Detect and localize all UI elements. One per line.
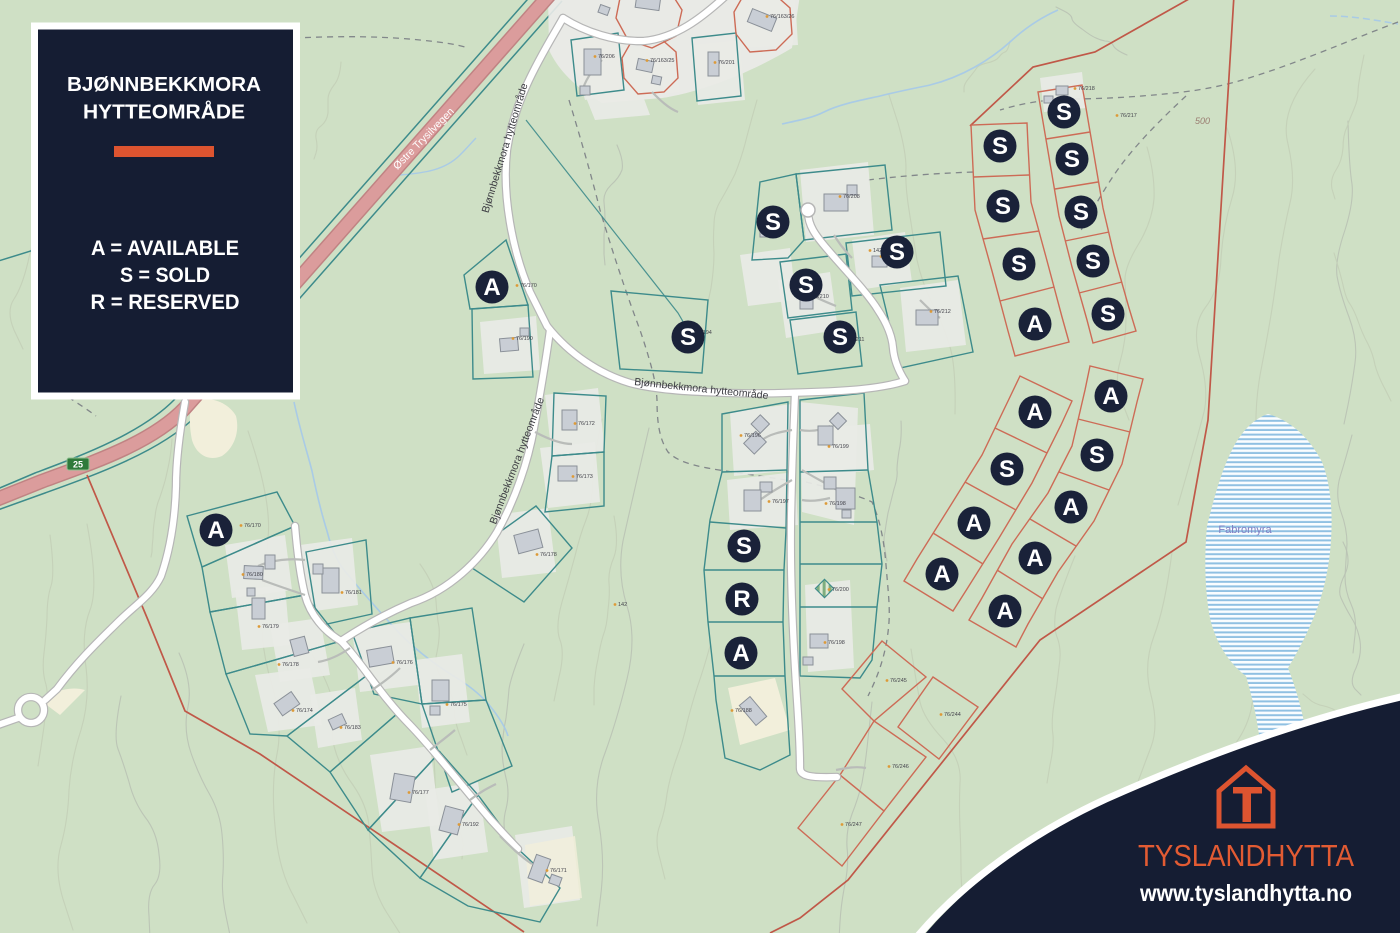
svg-text:76/244: 76/244 [944, 712, 961, 718]
svg-text:A: A [1062, 494, 1079, 521]
svg-text:76/208: 76/208 [843, 194, 860, 200]
svg-text:A: A [1102, 383, 1119, 410]
svg-text:R: R [733, 586, 750, 613]
svg-text:76/170: 76/170 [244, 523, 261, 529]
svg-text:76/198: 76/198 [829, 501, 846, 507]
svg-text:A: A [1026, 399, 1043, 426]
svg-text:76/201: 76/201 [718, 60, 735, 66]
svg-text:S: S [765, 209, 781, 236]
svg-text:76/176: 76/176 [396, 660, 413, 666]
svg-text:S: S [1089, 442, 1105, 469]
svg-text:S: S [1056, 99, 1072, 126]
svg-text:76/173: 76/173 [576, 474, 593, 480]
svg-text:76/178: 76/178 [540, 552, 557, 558]
svg-text:76/172: 76/172 [578, 421, 595, 427]
svg-text:76/196: 76/196 [744, 433, 761, 439]
svg-text:S: S [832, 324, 848, 351]
svg-text:A: A [207, 517, 224, 544]
svg-text:25: 25 [73, 460, 83, 470]
svg-text:76/171: 76/171 [550, 868, 567, 874]
svg-text:76/246: 76/246 [892, 764, 909, 770]
svg-text:76/177: 76/177 [412, 790, 429, 796]
svg-text:A: A [1026, 311, 1043, 338]
svg-text:S: S [995, 193, 1011, 220]
svg-text:76/212: 76/212 [934, 309, 951, 315]
svg-text:76/192: 76/192 [462, 822, 479, 828]
svg-text:142: 142 [618, 602, 627, 608]
svg-text:76/247: 76/247 [845, 822, 862, 828]
svg-text:76/217: 76/217 [1120, 113, 1137, 119]
svg-text:R = RESERVED: R = RESERVED [91, 291, 240, 314]
svg-text:A: A [933, 561, 950, 588]
svg-text:76/197: 76/197 [772, 499, 789, 505]
svg-text:S = SOLD: S = SOLD [120, 264, 210, 287]
svg-text:76/218: 76/218 [1078, 86, 1095, 92]
svg-text:S: S [680, 324, 696, 351]
svg-text:TYSLANDHYTTA: TYSLANDHYTTA [1138, 839, 1355, 873]
svg-text:76/178: 76/178 [282, 662, 299, 668]
svg-text:A = AVAILABLE: A = AVAILABLE [91, 237, 239, 260]
svg-text:S: S [1085, 248, 1101, 275]
svg-text:76/180: 76/180 [246, 572, 263, 578]
svg-text:76/200: 76/200 [832, 587, 849, 593]
svg-text:A: A [965, 510, 982, 537]
svg-text:76/163/24: 76/163/24 [655, 0, 679, 2]
svg-text:S: S [889, 239, 905, 266]
svg-text:76/174: 76/174 [296, 708, 313, 714]
svg-text:S: S [1064, 146, 1080, 173]
svg-text:S: S [736, 533, 752, 560]
svg-text:500: 500 [1195, 116, 1210, 126]
svg-text:A: A [996, 598, 1013, 625]
svg-text:S: S [999, 456, 1015, 483]
svg-text:S: S [1100, 301, 1116, 328]
svg-text:BJØNNBEKKMORA: BJØNNBEKKMORA [67, 74, 261, 96]
svg-text:S: S [1011, 251, 1027, 278]
svg-text:76/170: 76/170 [520, 283, 537, 289]
svg-text:76/163/26: 76/163/26 [770, 14, 794, 20]
svg-text:76/163/25: 76/163/25 [650, 58, 674, 64]
svg-text:HYTTEOMRÅDE: HYTTEOMRÅDE [83, 100, 245, 124]
svg-text:Fabromyra: Fabromyra [1218, 524, 1272, 536]
svg-text:76/175: 76/175 [450, 702, 467, 708]
svg-text:76/181: 76/181 [345, 590, 362, 596]
svg-text:76/198: 76/198 [828, 640, 845, 646]
svg-text:76/199: 76/199 [832, 444, 849, 450]
svg-text:76/183: 76/183 [344, 725, 361, 731]
svg-text:76/245: 76/245 [890, 678, 907, 684]
svg-text:S: S [992, 133, 1008, 160]
svg-text:www.tyslandhytta.no: www.tyslandhytta.no [1139, 880, 1352, 906]
svg-text:A: A [1026, 545, 1043, 572]
svg-text:A: A [483, 274, 500, 301]
svg-text:76/188: 76/188 [735, 708, 752, 714]
svg-text:76/179: 76/179 [262, 624, 279, 630]
svg-text:S: S [1073, 199, 1089, 226]
svg-text:S: S [798, 272, 814, 299]
svg-text:76/190: 76/190 [516, 336, 533, 342]
svg-text:76/206: 76/206 [598, 54, 615, 60]
svg-text:A: A [732, 640, 749, 667]
